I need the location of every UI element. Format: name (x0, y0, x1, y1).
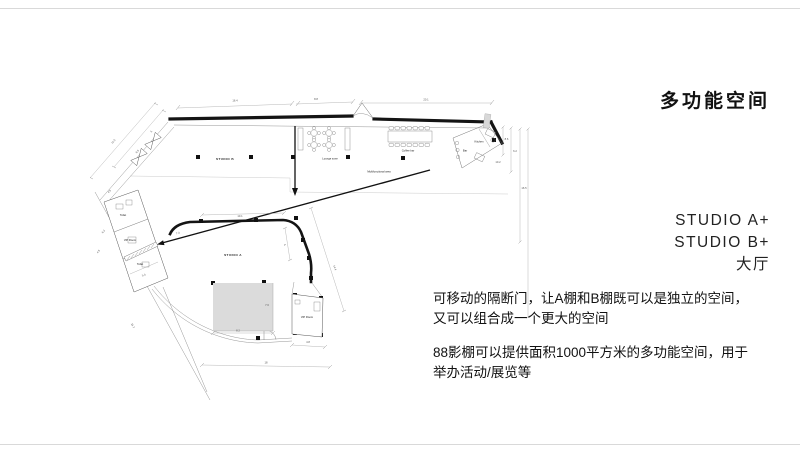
dim-stage-a: 7.6 (265, 303, 269, 307)
dim-stage-b: 8.2 (236, 329, 240, 333)
dim-right-b: 6.2 (513, 149, 517, 153)
room-label-bar: Bar (463, 149, 467, 153)
side-label-studio-a: STUDIO A+ (674, 210, 770, 232)
dim-left-a: 11.5 (110, 138, 117, 145)
thick-walls (170, 116, 502, 282)
dim-left-d: 4.5 (107, 188, 113, 194)
side-label-lobby: 大厅 (674, 254, 770, 276)
top-rule (0, 8, 800, 9)
dim-mid-d: 7.3 (175, 230, 180, 235)
dim-right-a: 8.6 (505, 137, 509, 141)
dim-left-f: 4.5 (95, 248, 101, 254)
space-name-list: STUDIO A+ STUDIO B+ 大厅 (674, 210, 770, 276)
dim-right-c: 10.2 (495, 160, 501, 164)
room-label-toilet-upper: Toilet (120, 213, 127, 217)
room-label-studio-b: STUDIO B (216, 157, 234, 161)
room-label-multifunctional: Multifunctional area (367, 170, 391, 174)
dim-top-left: 16.4 (232, 99, 238, 103)
dim-mid-b: 4 (283, 243, 287, 246)
partition-drop-arrow (292, 126, 298, 196)
room-label-vip-bottom: VIP Room (301, 315, 314, 319)
room-label-vip-left: VIP Room (124, 238, 137, 242)
side-label-studio-b: STUDIO B+ (674, 232, 770, 254)
round-table (308, 127, 321, 140)
stage-area (213, 283, 273, 331)
dim-top-mid: 8.8 (314, 97, 318, 101)
slide: { "title": "多功能空间", "side_labels": { "li… (0, 0, 800, 452)
lounge-furniture (298, 127, 350, 152)
dim-left-c: 5 (149, 129, 153, 133)
room-label-kitchen: Kitchen (475, 140, 484, 144)
partition-stack (483, 114, 491, 129)
bottom-rule (0, 444, 800, 445)
dim-left-e: 6.2 (100, 228, 106, 234)
room-label-coffee-bar: Coffee bar (402, 149, 415, 153)
round-table (308, 139, 321, 152)
coffee-bar-table (388, 127, 432, 147)
round-table (323, 139, 336, 152)
dim-bottom-b: 18 (265, 361, 268, 365)
dim-mid-c: 14.4 (332, 265, 338, 272)
dim-left-b: 8.5 (135, 148, 141, 154)
round-table (323, 127, 336, 140)
double-door-icon (145, 132, 162, 149)
dim-left-h: 16.7 (130, 322, 136, 329)
room-label-studio-a: STUDIO A (224, 253, 242, 257)
page-title: 多功能空间 (660, 86, 770, 113)
dim-bottom-a: 4.8 (306, 340, 310, 344)
partition-direction-arrow (157, 170, 430, 245)
room-label-toilet-lower: Toilet (137, 262, 144, 266)
dim-top-right: 20.1 (423, 98, 429, 102)
floor-plan: 16.4 8.8 20.1 11.5 8.5 5 4.5 6.2 4.5 5.3… (90, 82, 532, 402)
room-label-lounge: Lounge zone (322, 157, 338, 161)
dim-mid-a: 10.1 (237, 214, 243, 218)
dim-right-d: 16.5 (521, 186, 527, 190)
